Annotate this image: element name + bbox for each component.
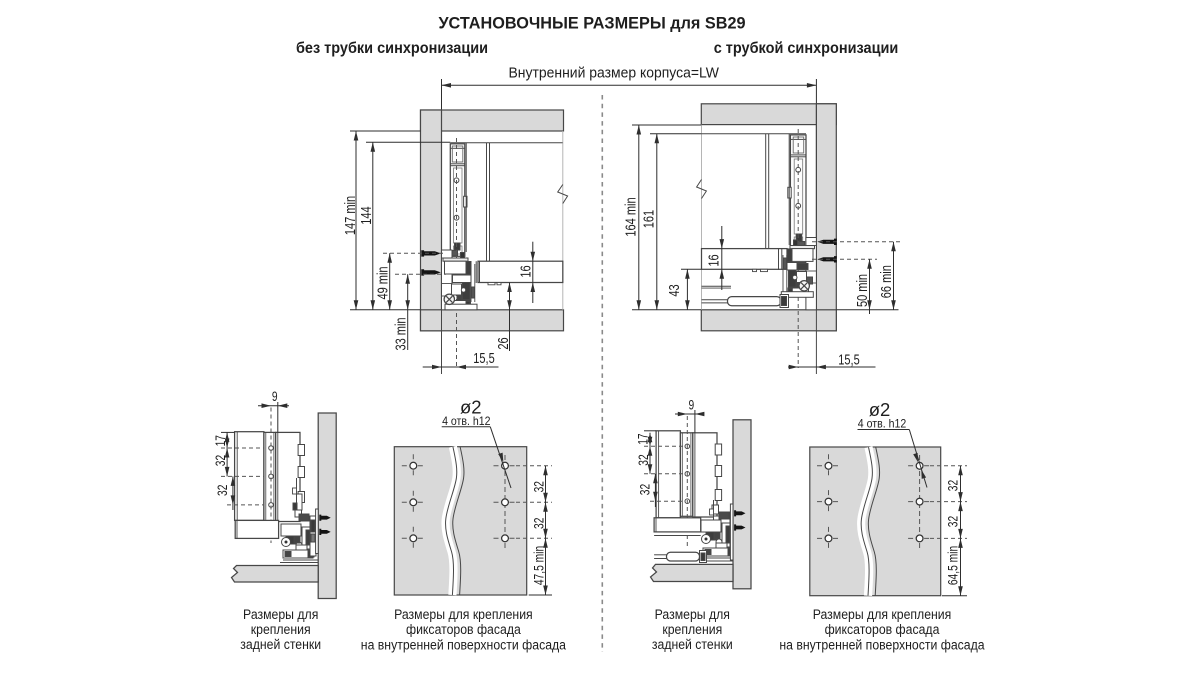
svg-text:32: 32 [215, 485, 230, 496]
svg-text:на внутренней поверхности фаса: на внутренней поверхности фасада [361, 637, 567, 652]
svg-text:крепления: крепления [251, 622, 311, 637]
svg-text:32: 32 [945, 480, 960, 491]
svg-text:32: 32 [636, 454, 651, 465]
svg-text:17: 17 [636, 433, 651, 444]
svg-text:Размеры для крепления: Размеры для крепления [813, 607, 952, 622]
svg-text:32: 32 [531, 481, 546, 492]
svg-text:16: 16 [707, 254, 723, 266]
svg-text:Размеры для: Размеры для [243, 607, 318, 622]
svg-text:144: 144 [359, 206, 375, 224]
svg-text:фиксаторов фасада: фиксаторов фасада [825, 622, 940, 637]
svg-text:147 min: 147 min [343, 196, 359, 235]
svg-text:15,5: 15,5 [473, 351, 494, 367]
svg-text:161: 161 [642, 210, 658, 228]
svg-text:задней стенки: задней стенки [240, 637, 321, 652]
svg-text:64,5 min: 64,5 min [945, 546, 960, 585]
svg-text:32: 32 [945, 516, 960, 527]
svg-text:9: 9 [272, 389, 278, 404]
svg-text:Размеры для: Размеры для [655, 607, 730, 622]
svg-text:задней стенки: задней стенки [652, 637, 733, 652]
svg-text:16: 16 [519, 265, 535, 277]
svg-text:4 отв. h12: 4 отв. h12 [442, 414, 491, 428]
svg-text:УСТАНОВОЧНЫЕ РАЗМЕРЫ для SB29: УСТАНОВОЧНЫЕ РАЗМЕРЫ для SB29 [438, 14, 745, 32]
svg-text:50 min: 50 min [855, 274, 871, 307]
svg-text:26: 26 [496, 337, 512, 349]
svg-text:33 min: 33 min [393, 317, 409, 350]
svg-text:15,5: 15,5 [838, 353, 859, 369]
svg-text:17: 17 [213, 435, 228, 446]
svg-text:без трубки синхронизации: без трубки синхронизации [296, 40, 488, 57]
svg-text:49 min: 49 min [375, 266, 391, 299]
svg-text:164 min: 164 min [624, 197, 640, 236]
svg-text:47,5 min: 47,5 min [531, 546, 546, 585]
svg-text:крепления: крепления [662, 622, 722, 637]
svg-text:Размеры для крепления: Размеры для крепления [394, 607, 533, 622]
svg-text:фиксаторов фасада: фиксаторов фасада [406, 622, 521, 637]
svg-text:Внутренний размер корпуса=LW: Внутренний размер корпуса=LW [509, 64, 720, 81]
svg-text:32: 32 [531, 518, 546, 529]
svg-text:43: 43 [667, 284, 683, 296]
svg-text:32: 32 [638, 484, 653, 495]
svg-text:4 отв. h12: 4 отв. h12 [858, 416, 907, 430]
svg-text:на внутренней поверхности фаса: на внутренней поверхности фасада [779, 638, 985, 653]
svg-text:66 min: 66 min [879, 265, 895, 298]
svg-text:32: 32 [213, 455, 228, 466]
svg-text:с трубкой синхронизации: с трубкой синхронизации [714, 40, 899, 57]
svg-text:9: 9 [688, 398, 694, 413]
